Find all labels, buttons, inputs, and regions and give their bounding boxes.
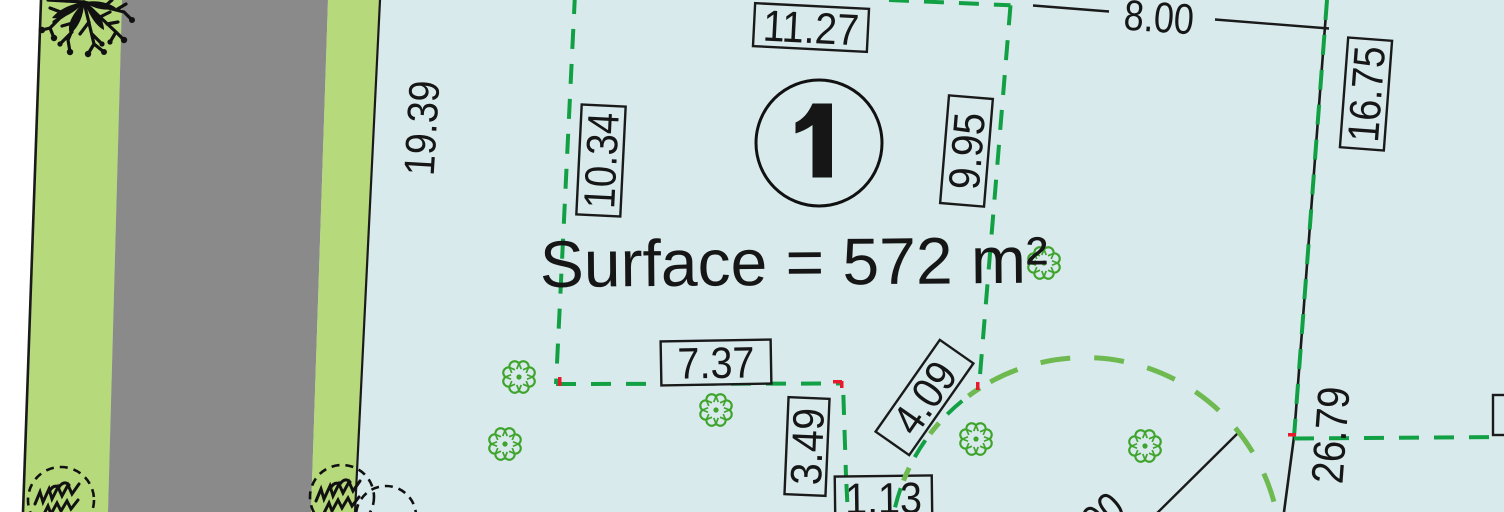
- svg-text:Surface = 572 m²: Surface = 572 m²: [539, 223, 1048, 301]
- svg-text:1.13: 1.13: [845, 474, 923, 512]
- svg-text:19.39: 19.39: [396, 79, 450, 177]
- svg-text:8.00: 8.00: [1122, 0, 1195, 44]
- svg-text:7.37: 7.37: [677, 338, 755, 388]
- svg-text:9.95: 9.95: [940, 111, 995, 192]
- svg-text:16.75: 16.75: [1339, 44, 1395, 143]
- svg-text:10.34: 10.34: [575, 111, 629, 209]
- svg-text:3.49: 3.49: [782, 407, 834, 486]
- svg-text:11.27: 11.27: [762, 2, 860, 56]
- svg-text:26.79: 26.79: [1301, 385, 1359, 486]
